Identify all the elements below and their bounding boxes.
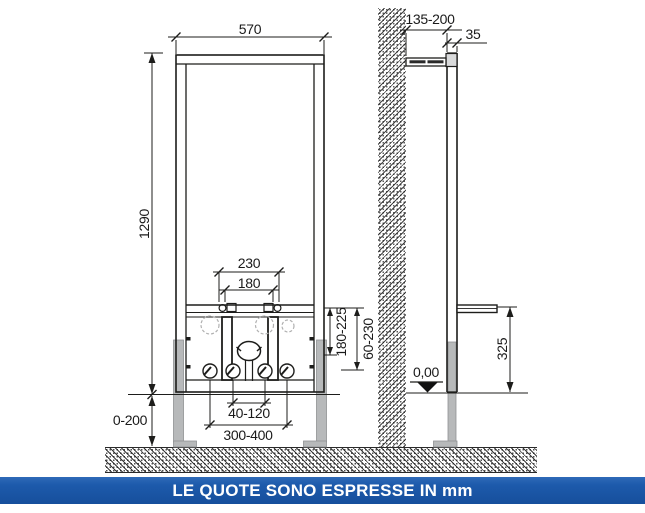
drain-fitting [237, 342, 262, 382]
dim-40-120-label: 40-120 [219, 405, 279, 421]
dim-1290-label: 1290 [136, 194, 152, 254]
units-banner-text: LE QUOTE SONO ESPRESSE IN mm [172, 481, 472, 501]
dim-325-label: 325 [494, 319, 510, 379]
dim-40-120 [227, 380, 271, 408]
dim-230-label: 230 [219, 255, 279, 271]
dim-60-230-label: 60-230 [360, 309, 376, 369]
dim-180-label: 180 [219, 275, 279, 291]
units-banner: LE QUOTE SONO ESPRESSE IN mm [0, 477, 645, 504]
dim-570-label: 570 [220, 21, 280, 37]
technical-drawing: 570 1290 230 180 180-225 60-230 0-200 40… [0, 0, 645, 513]
water-connection-bolts [203, 364, 294, 378]
dim-300-400-label: 300-400 [218, 427, 278, 443]
dim-180-225-label: 180-225 [333, 302, 349, 362]
ghost-fixing-holes [201, 316, 294, 334]
dim-135-200-label: 135-200 [400, 11, 460, 27]
side-view-frame [406, 53, 497, 392]
drawing-linework [0, 0, 645, 513]
floor-level-label: 0,00 [396, 364, 456, 380]
dim-0-200-label: 0-200 [100, 412, 160, 428]
side-view-leg [434, 342, 458, 447]
dim-35-label: 35 [443, 26, 503, 42]
